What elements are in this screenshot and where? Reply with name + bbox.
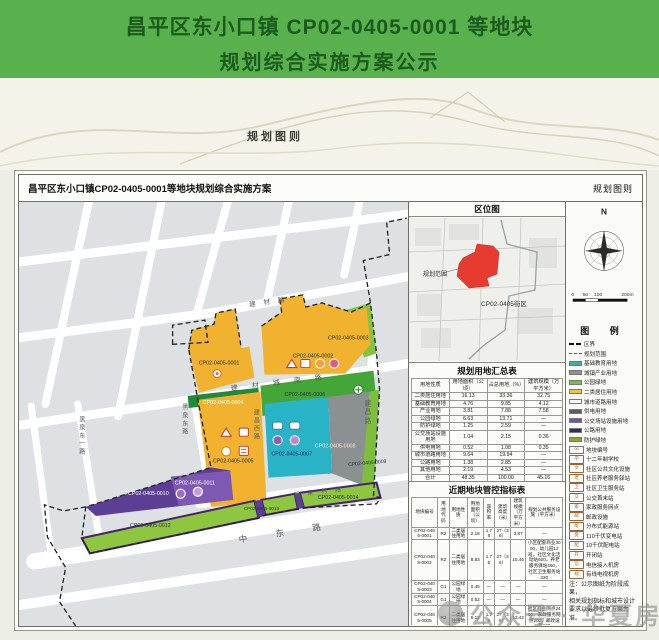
legend-label: 10千伏配电站	[586, 541, 620, 549]
scope-label: 规划范围	[423, 270, 447, 278]
table-row: 其他用地2.194.53—	[412, 467, 563, 475]
table-cell: —	[526, 581, 563, 593]
band-caption: 规划图则	[210, 128, 340, 144]
note: 注：公示图纸为阶段成果， 相关规划指标和城市设计 要求以最终批复方案为准。	[566, 579, 642, 626]
legend-swatch	[569, 361, 582, 366]
table-row: 公路用地1.382.85—	[412, 459, 563, 467]
table-cell: 公交场站设施用地	[412, 430, 450, 444]
table-cell: 小区配套商业3000，幼儿园12班，社区文化活动站600，养老服务驿站450，社…	[526, 540, 563, 581]
table-cell: —	[525, 423, 563, 431]
control-table-title: 近期地块管控指标表	[411, 484, 563, 496]
table-cell: 2.59	[487, 423, 525, 431]
legend-item: 家家政服务网点	[569, 502, 639, 512]
table-cell: CP02-0405-0001	[412, 527, 438, 539]
table-cell: 3.81	[449, 408, 487, 416]
table-cell: 1.25	[449, 423, 487, 431]
table-cell: 45.16	[525, 474, 563, 482]
table-cell: 社区商业网点2400，家政服务网点200，邮政设施100	[526, 606, 563, 625]
road-label: 建昌西路	[252, 408, 259, 441]
table-cell: 城市道路用地	[412, 452, 450, 460]
table-header-cell: 建筑规模（万平方米）	[510, 498, 526, 528]
legend-item: 文社区公共文化设施	[569, 464, 639, 474]
table-cell: —	[526, 527, 563, 539]
table-cell: —	[510, 593, 526, 605]
sheet-header: 昌平区东小口镇CP02-0405-0001等地块规划综合实施方案 规划图则	[19, 175, 642, 202]
table-cell: 防护绿地	[412, 423, 450, 431]
table-cell: 0.35	[525, 444, 563, 452]
legend-item: 供电用地	[569, 406, 639, 416]
table-cell: 1.75	[483, 606, 495, 625]
table-cell: 二类居住用地	[449, 606, 467, 625]
table-cell: 4.76	[449, 400, 487, 408]
legend-item: 00地块编号	[569, 445, 639, 455]
legend-label: 公交场站设施用地	[584, 417, 628, 425]
table-header-cell: 容积率	[483, 498, 495, 528]
table-row: 公交场站设施用地1.042.150.36	[412, 430, 563, 444]
table-cell: 0.52	[467, 593, 483, 605]
legend-label: 十二年制学校	[586, 455, 619, 463]
summary-table: 用地性质用地面积（公顷）占总用地（%）建筑规模（万平方米）二类居住用地16.13…	[411, 378, 563, 482]
table-header-cell: 用地性质	[449, 498, 467, 528]
scale-tick: 100	[594, 292, 602, 298]
table-cell: G1	[438, 593, 450, 605]
legend-label: 公交首末站	[586, 494, 614, 502]
sheet-inner-frame: 昌平区东小口镇CP02-0405-0001等地块规划综合实施方案 规划图则	[18, 174, 643, 627]
table-row: 产业用地3.817.887.58	[412, 408, 563, 416]
table-cell: 合计	[412, 474, 450, 482]
家政服务网点-icon: 家	[569, 503, 584, 512]
table-row: 合计48.35100.0045.16	[412, 474, 563, 482]
facility-icon	[290, 422, 300, 429]
location-map-svg: 规划范围 CP02-0405街区	[409, 217, 565, 362]
legend-swatch	[569, 399, 582, 404]
legend-label: 家政服务网点	[586, 503, 619, 511]
table-row: CP02-0405-0005R2二类居住用地5.121.7527（36）13.4…	[412, 606, 563, 625]
table-cell: 13.42	[510, 606, 526, 625]
table-header-cell: 用地面积（公顷）	[467, 498, 483, 528]
社区公共文化设施-icon: 文	[569, 464, 584, 473]
table-cell: 供电用地	[412, 444, 450, 452]
table-cell: 3.87	[510, 527, 526, 539]
legend-swatch: 00	[569, 446, 584, 454]
legend-item: 二类居住用地	[569, 387, 639, 397]
facility-icon	[330, 359, 339, 368]
legend-label: 城市道路用地	[584, 398, 617, 406]
table-cell: 公园绿地	[449, 581, 467, 593]
分布式能源站-icon: 能	[569, 522, 584, 531]
table-cell: —	[495, 581, 511, 593]
legend-label: 公路用地	[584, 426, 606, 434]
parcel-label: CP02-0405-0010	[128, 491, 169, 497]
facility-icon	[315, 359, 324, 368]
table-row: CP02-0405-0003G1公园绿地0.45————	[412, 581, 563, 593]
parcel-label: CP02-0405-0012	[130, 523, 171, 529]
legend-item: 公路用地	[569, 426, 639, 436]
table-cell: 32.75	[525, 393, 563, 401]
district-label: CP02-0405街区	[481, 299, 527, 308]
legend-title: 图 例	[566, 324, 642, 337]
邮政设施-icon: 邮	[569, 512, 584, 521]
table-cell: 2.15	[487, 430, 525, 444]
scale-tick: 50	[583, 292, 589, 298]
legend-swatch	[569, 418, 582, 423]
parcel-label: CP02-0405-0003	[328, 335, 369, 341]
table-cell: 100.00	[487, 474, 525, 482]
table-row: 城市道路用地9.6419.94—	[412, 452, 563, 460]
table-cell: 13.71	[487, 415, 525, 423]
legend-label: 社区卫生服务站	[586, 484, 625, 492]
legend-swatch	[569, 380, 582, 385]
开闭站-icon: 开	[569, 551, 584, 560]
facility-icon	[273, 436, 282, 445]
legend-label: 地块编号	[586, 446, 608, 454]
table-header-cell: 地块编号	[412, 498, 438, 528]
scale-tick: 200m	[621, 292, 633, 298]
公交首末站-icon: 交	[569, 493, 584, 502]
table-row: 公园绿地6.6313.71—	[412, 415, 563, 423]
table-header-cell: 建筑高度（米）	[495, 498, 511, 528]
info-panel: 区位图	[409, 202, 566, 626]
parcel-label: CP02-0405-0013	[244, 506, 280, 511]
table-row: CP02-0405-0001R2二类居住用地2.181.7827（36）3.87…	[412, 527, 563, 539]
legend-label: 开闭站	[586, 551, 603, 559]
legend-item: 老社区养老服务驿站	[569, 474, 639, 484]
legend-label: 社区公共文化设施	[586, 465, 630, 473]
table-cell: CP02-0405-0002	[412, 540, 438, 581]
legend-item: 防护绿地	[569, 435, 639, 445]
table-cell: 27（36）	[495, 606, 511, 625]
legend-item: 配10千伏配电站	[569, 541, 639, 551]
legend-swatch	[569, 409, 582, 414]
十二年制学校-icon: 学	[569, 455, 584, 464]
table-cell: 0.36	[525, 430, 563, 444]
table-cell: 27（36）	[495, 540, 511, 581]
legend-item: 学十二年制学校	[569, 454, 639, 464]
legend-swatch	[569, 428, 582, 433]
compass-rose	[584, 230, 623, 271]
社区卫生服务站-icon: 卫	[569, 483, 584, 492]
table-cell: 1.04	[449, 430, 487, 444]
table-row: CP02-0405-0002R2二类居住用地8.831.7527（36）15.4…	[412, 540, 563, 581]
legend-item: 公交场站设施用地	[569, 416, 639, 426]
table-cell: —	[510, 581, 526, 593]
table-row: 二类居住用地16.1333.3632.75	[412, 393, 563, 401]
control-index-section: 近期地块管控指标表 地块编号用地代码用地性质用地面积（公顷）容积率建筑高度（米）…	[409, 482, 565, 625]
legend-item: 区界	[569, 339, 639, 349]
legend-column: N 0 50 100	[566, 202, 642, 626]
legend-item: 规划范围	[569, 349, 639, 359]
legend-label: 公园绿地	[584, 378, 606, 386]
road-label: 黑泉东路	[181, 404, 188, 436]
table-cell: —	[483, 581, 495, 593]
parcel-label: CP02-0405-0008	[315, 443, 356, 449]
table-cell: 9.85	[487, 400, 525, 408]
table-cell: 4.53	[487, 467, 525, 475]
table-header-cell: 占总用地（%）	[487, 379, 525, 393]
sheet-title: 昌平区东小口镇CP02-0405-0001等地块规划综合实施方案	[28, 181, 271, 195]
legend-label: 城镇产业用地	[584, 369, 617, 377]
legend-label: 基础教育用地	[584, 359, 617, 367]
legend-label: 有线电视机房	[586, 570, 619, 578]
table-cell: —	[525, 452, 563, 460]
legend-swatch	[569, 343, 582, 345]
facility-icon	[239, 446, 248, 455]
table-cell: R2	[438, 527, 450, 539]
legend-label: 社区养老服务驿站	[586, 474, 630, 482]
table-cell: 其他用地	[412, 467, 450, 475]
note-line: 注：公示图纸为阶段成果，	[569, 581, 639, 598]
facility-icon-dot	[216, 372, 219, 375]
legend-list: 区界规划范围基础教育用地城镇产业用地公园绿地二类居住用地城市道路用地供电用地公交…	[566, 339, 642, 579]
table-cell: —	[483, 593, 495, 605]
table-cell: 公园绿地	[412, 415, 450, 423]
table-header-cell: 建筑规模（万平方米）	[525, 379, 563, 393]
table-cell: R2	[438, 540, 450, 581]
table-cell: 0.52	[449, 444, 487, 452]
110千伏变电站-icon: 变	[569, 531, 584, 540]
table-cell: 2.19	[449, 467, 487, 475]
parcel-label: CP02-0405-0011	[175, 481, 215, 487]
legend-swatch	[569, 437, 582, 442]
land-use-summary-section: 规划用地汇总表 用地性质用地面积（公顷）占总用地（%）建筑规模（万平方米）二类居…	[409, 363, 565, 482]
sheet-title-right: 规划图则	[593, 182, 633, 195]
legend-item: 信电信接入机房	[569, 560, 639, 570]
facility-icon	[273, 422, 283, 429]
table-cell: 16.13	[449, 393, 487, 401]
table-row: CP02-0405-0004G1公园绿地0.52————	[412, 593, 563, 605]
facility-icon	[239, 428, 248, 436]
table-cell: 48.35	[449, 474, 487, 482]
table-cell: CP02-0405-0005	[412, 606, 438, 625]
legend-item: 能分布式能源站	[569, 521, 639, 531]
legend-label: 分布式能源站	[586, 522, 619, 530]
table-cell: —	[525, 415, 563, 423]
table-cell: —	[495, 593, 511, 605]
table-header-cell: 规划公共服务设施（平方米）	[526, 498, 563, 528]
parcel-label: CP02-0405-0001	[199, 361, 240, 367]
plan-map: 建 材 路 建 材 城 南 路 中 东 路 贺 家 村 路 黑泉东一路 黑泉东路…	[19, 202, 409, 626]
note-line: 相关规划指标和城市设计	[569, 598, 639, 606]
scale-tick: 0	[571, 292, 574, 298]
banner-title-line1: 昌平区东小口镇 CP02-0405-0001 等地块	[0, 0, 659, 41]
table-cell: 基础教育用地	[412, 400, 450, 408]
table-cell: R2	[438, 606, 450, 625]
table-cell: 二类居住用地	[449, 527, 467, 539]
north-label: N	[601, 207, 607, 217]
legend-swatch	[569, 370, 582, 375]
parcel-label: CP02-0405-0005	[213, 458, 254, 464]
legend-label: 二类居住用地	[584, 388, 617, 396]
legend-item: 基础教育用地	[569, 358, 639, 368]
parcel-label: CP02-0405-0004	[203, 400, 244, 406]
facility-icon	[176, 489, 185, 498]
legend-swatch	[569, 389, 582, 394]
facility-icon	[301, 359, 310, 367]
legend-label: 邮政设施	[586, 513, 608, 521]
table-cell: 9.64	[449, 452, 487, 460]
table-cell: CP02-0405-0003	[412, 581, 438, 593]
legend-label: 防护绿地	[584, 436, 606, 444]
table-cell: 27（36）	[495, 527, 511, 539]
table-header-cell: 用地面积（公顷）	[449, 379, 487, 393]
table-cell: 公园绿地	[449, 593, 467, 605]
table-cell: —	[525, 459, 563, 467]
parcel-CP02-0405-0011-light	[171, 471, 234, 506]
plan-map-svg: 建 材 路 建 材 城 南 路 中 东 路 贺 家 村 路 黑泉东一路 黑泉东路…	[19, 202, 408, 626]
parcel-label: CP02-0405-0007	[271, 451, 312, 457]
table-header-cell: 用地代码	[438, 498, 450, 528]
legend-label: 区界	[584, 340, 595, 348]
table-cell: 公路用地	[412, 459, 450, 467]
legend-item: 变110千伏变电站	[569, 531, 639, 541]
page: 昌平区东小口镇 CP02-0405-0001 等地块 规划综合实施方案公示 规划…	[0, 0, 659, 640]
legend-label: 电信接入机房	[586, 561, 619, 569]
facility-icon	[222, 447, 231, 456]
legend-item: 卫社区卫生服务站	[569, 483, 639, 493]
table-cell: 7.58	[525, 408, 563, 416]
legend-item: 开开闭站	[569, 550, 639, 560]
legend-item: 交公交首末站	[569, 493, 639, 503]
facility-icon	[290, 436, 299, 445]
table-cell: 19.94	[487, 452, 525, 460]
location-map-section: 区位图	[409, 202, 565, 363]
table-cell: G1	[438, 581, 450, 593]
facility-icon	[193, 487, 202, 496]
legend-item: 城镇产业用地	[569, 368, 639, 378]
电信接入机房-icon: 信	[569, 560, 584, 569]
table-cell: CP02-0405-0004	[412, 593, 438, 605]
table-cell: 1.08	[487, 444, 525, 452]
parcel-label: CP02-0405-0002	[293, 353, 334, 359]
legend-item: 邮邮政设施	[569, 512, 639, 522]
table-cell: 产业用地	[412, 408, 450, 416]
legend-item: 视有线电视机房	[569, 569, 639, 579]
table-cell: 1.75	[483, 540, 495, 581]
table-header-cell: 用地性质	[412, 379, 450, 393]
10千伏配电站-icon: 配	[569, 541, 584, 550]
table-cell: 1.78	[483, 527, 495, 539]
legend-label: 110千伏变电站	[586, 532, 622, 540]
data-table: 用地性质用地面积（公顷）占总用地（%）建筑规模（万平方米）二类居住用地16.13…	[411, 378, 563, 482]
社区养老服务驿站-icon: 老	[569, 474, 584, 483]
legend-swatch	[569, 353, 582, 354]
mountain-band: 规划图则	[0, 78, 659, 170]
table-cell: 二类居住用地	[449, 540, 467, 581]
table-row: 基础教育用地4.769.854.12	[412, 400, 563, 408]
table-cell: 2.18	[467, 527, 483, 539]
table-cell: 1.38	[449, 459, 487, 467]
table-cell: 15.46	[510, 540, 526, 581]
table-cell: 二类居住用地	[412, 393, 450, 401]
data-table: 地块编号用地代码用地性质用地面积（公顷）容积率建筑高度（米）建筑规模（万平方米）…	[411, 497, 563, 625]
location-map-title: 区位图	[409, 202, 565, 217]
scale-bar: 0 50 100 200m	[571, 292, 633, 302]
有线电视机房-icon: 视	[569, 570, 584, 579]
legend-item: 公园绿地	[569, 378, 639, 388]
table-row: 防护绿地1.252.59—	[412, 423, 563, 431]
banner: 昌平区东小口镇 CP02-0405-0001 等地块 规划综合实施方案公示	[0, 0, 659, 78]
parcel-label: CP02-0405-0006	[285, 392, 326, 398]
banner-title-line2: 规划综合实施方案公示	[0, 46, 659, 75]
table-cell: 5.12	[467, 606, 483, 625]
legend-item: 城市道路用地	[569, 397, 639, 407]
table-cell: 0.45	[467, 581, 483, 593]
table-cell: 4.12	[525, 400, 563, 408]
parcel-label: CP02-0405-0014	[318, 495, 359, 501]
table-cell: —	[525, 467, 563, 475]
table-cell: 8.83	[467, 540, 483, 581]
table-row: 供电用地0.521.080.35	[412, 444, 563, 452]
table-cell: 33.36	[487, 393, 525, 401]
table-cell: 2.85	[487, 459, 525, 467]
legend-label: 规划范围	[584, 350, 606, 358]
mountain-sketch	[0, 78, 659, 170]
plan-sheet: 昌平区东小口镇CP02-0405-0001等地块规划综合实施方案 规划图则	[14, 170, 647, 631]
road-label: 黑泉东一路	[78, 416, 85, 456]
legend-label: 供电用地	[584, 407, 606, 415]
note-line: 要求以最终批复方案为准。	[569, 606, 639, 623]
table-cell: 6.63	[449, 415, 487, 423]
compass-scale: N 0 50 100	[566, 202, 642, 321]
control-table: 地块编号用地代码用地性质用地面积（公顷）容积率建筑高度（米）建筑规模（万平方米）…	[411, 497, 563, 625]
table-cell: 7.88	[487, 408, 525, 416]
table-cell: —	[526, 593, 563, 605]
